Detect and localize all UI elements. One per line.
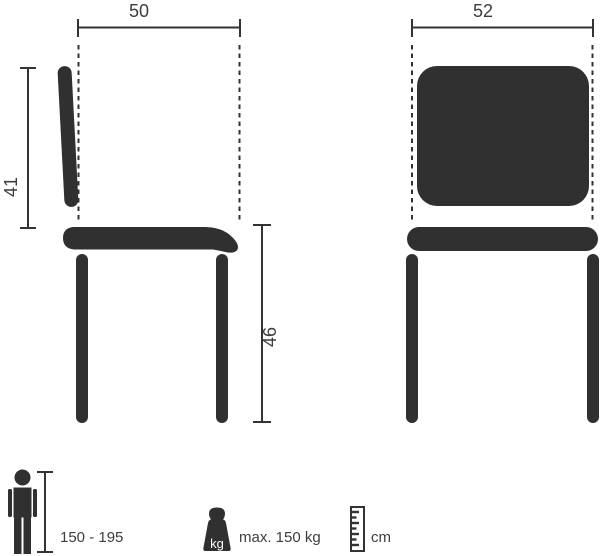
seat-front <box>407 227 598 251</box>
person-height-range-label: 150 - 195 <box>60 530 123 545</box>
dimension-line-seat-height <box>253 225 271 422</box>
dimension-line-backrest-height <box>20 68 36 228</box>
backrest-front <box>417 66 589 206</box>
chair-front-view <box>406 19 599 423</box>
dim-label-seat-width: 52 <box>473 2 493 20</box>
chair-leg-side-front <box>216 254 228 423</box>
kg-badge-label: kg <box>210 536 224 551</box>
chair-leg-front-left <box>406 254 418 423</box>
chair-leg-front-right <box>587 254 599 423</box>
max-weight-label: max. 150 kg <box>239 530 321 545</box>
chair-leg-side-back <box>76 254 88 423</box>
seat-side <box>63 227 238 253</box>
projection-lines-side <box>79 45 240 222</box>
person-icon <box>8 470 37 555</box>
dim-label-backrest-height: 41 <box>2 177 20 197</box>
dimension-line-seat-width <box>412 19 593 37</box>
dim-label-seat-height: 46 <box>261 327 279 347</box>
dim-label-seat-depth: 50 <box>129 2 149 20</box>
unit-label: cm <box>371 530 391 545</box>
dimension-line-seat-depth <box>78 19 240 37</box>
ruler-icon <box>351 507 364 551</box>
diagram-canvas: kg <box>0 0 600 556</box>
backrest-side <box>57 66 78 208</box>
weight-kg-icon: kg <box>203 508 230 552</box>
chair-dimension-diagram: kg 50 52 41 46 150 - 195 max. 150 kg cm <box>0 0 600 556</box>
chair-side-view <box>20 19 271 423</box>
dimension-line-person-height <box>37 472 53 552</box>
